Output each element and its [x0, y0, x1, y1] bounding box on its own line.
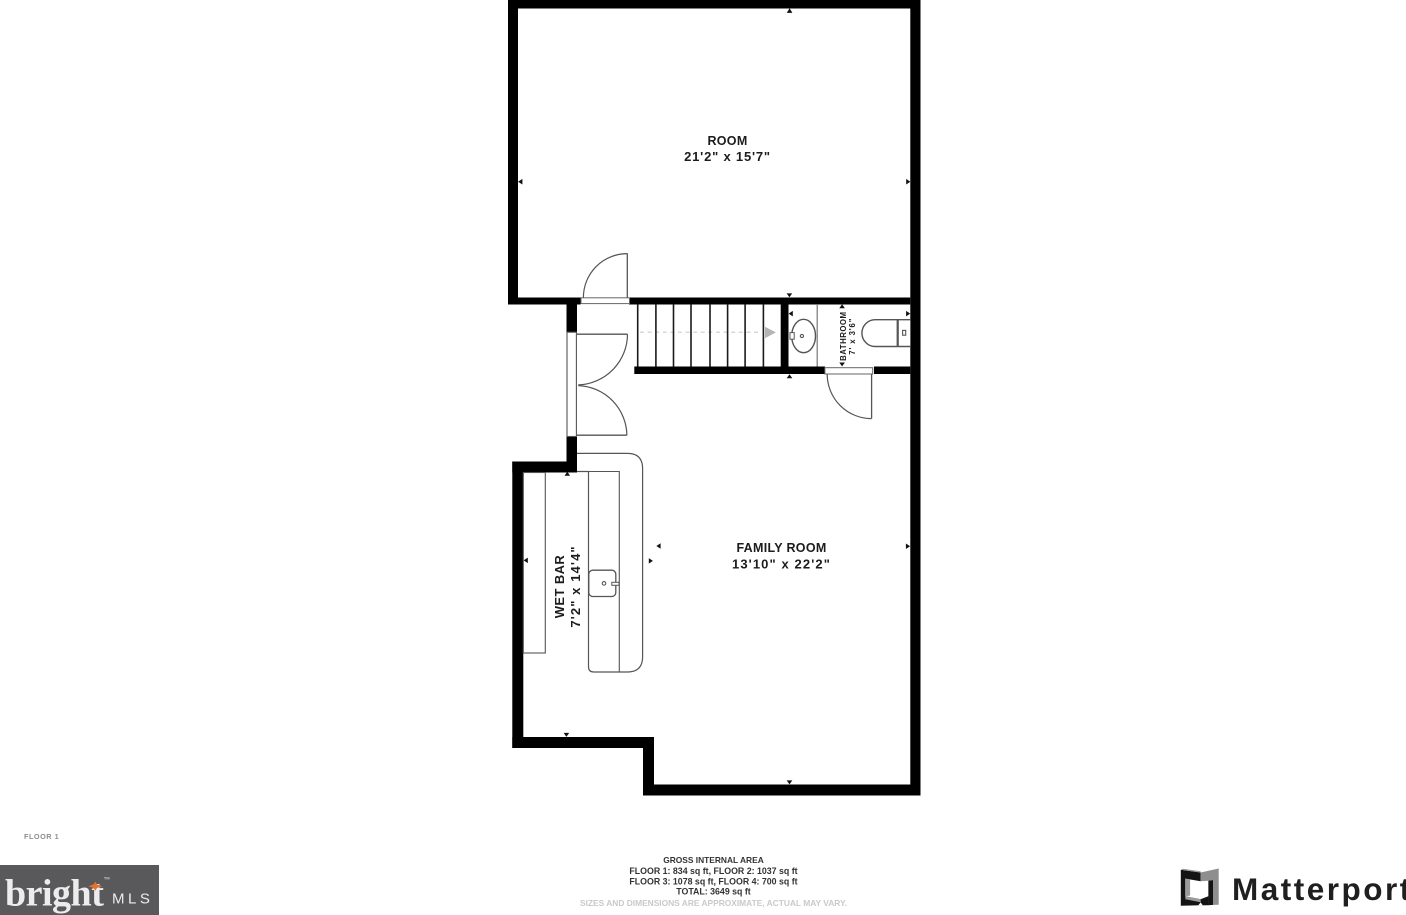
svg-text:FAMILY ROOM: FAMILY ROOM — [736, 541, 826, 555]
svg-text:MLS: MLS — [112, 891, 153, 908]
svg-text:13'10" x 22'2": 13'10" x 22'2" — [732, 556, 831, 571]
svg-text:WET BAR: WET BAR — [552, 555, 567, 619]
svg-text:BATHROOM: BATHROOM — [839, 312, 848, 361]
svg-text:TOTAL: 3649 sq ft: TOTAL: 3649 sq ft — [676, 887, 751, 897]
svg-text:FLOOR 3: 1078 sq ft, FLOOR 4:: FLOOR 3: 1078 sq ft, FLOOR 4: 700 sq ft — [629, 877, 797, 887]
svg-text:ROOM: ROOM — [707, 134, 747, 148]
svg-text:7' x 3'6": 7' x 3'6" — [848, 318, 857, 355]
svg-text:bright: bright — [5, 873, 104, 915]
svg-text:GROSS INTERNAL AREA: GROSS INTERNAL AREA — [663, 855, 764, 865]
svg-text:™: ™ — [104, 877, 111, 884]
svg-text:Matterport: Matterport — [1232, 871, 1406, 907]
svg-text:7'2" x 14'4": 7'2" x 14'4" — [568, 545, 583, 627]
svg-text:FLOOR 1: FLOOR 1 — [24, 832, 59, 841]
svg-text:SIZES AND DIMENSIONS ARE APPRO: SIZES AND DIMENSIONS ARE APPROXIMATE, AC… — [580, 898, 847, 908]
svg-text:FLOOR 1: 834 sq ft, FLOOR 2: 1: FLOOR 1: 834 sq ft, FLOOR 2: 1037 sq ft — [629, 866, 797, 876]
svg-text:21'2" x 15'7": 21'2" x 15'7" — [684, 149, 771, 164]
